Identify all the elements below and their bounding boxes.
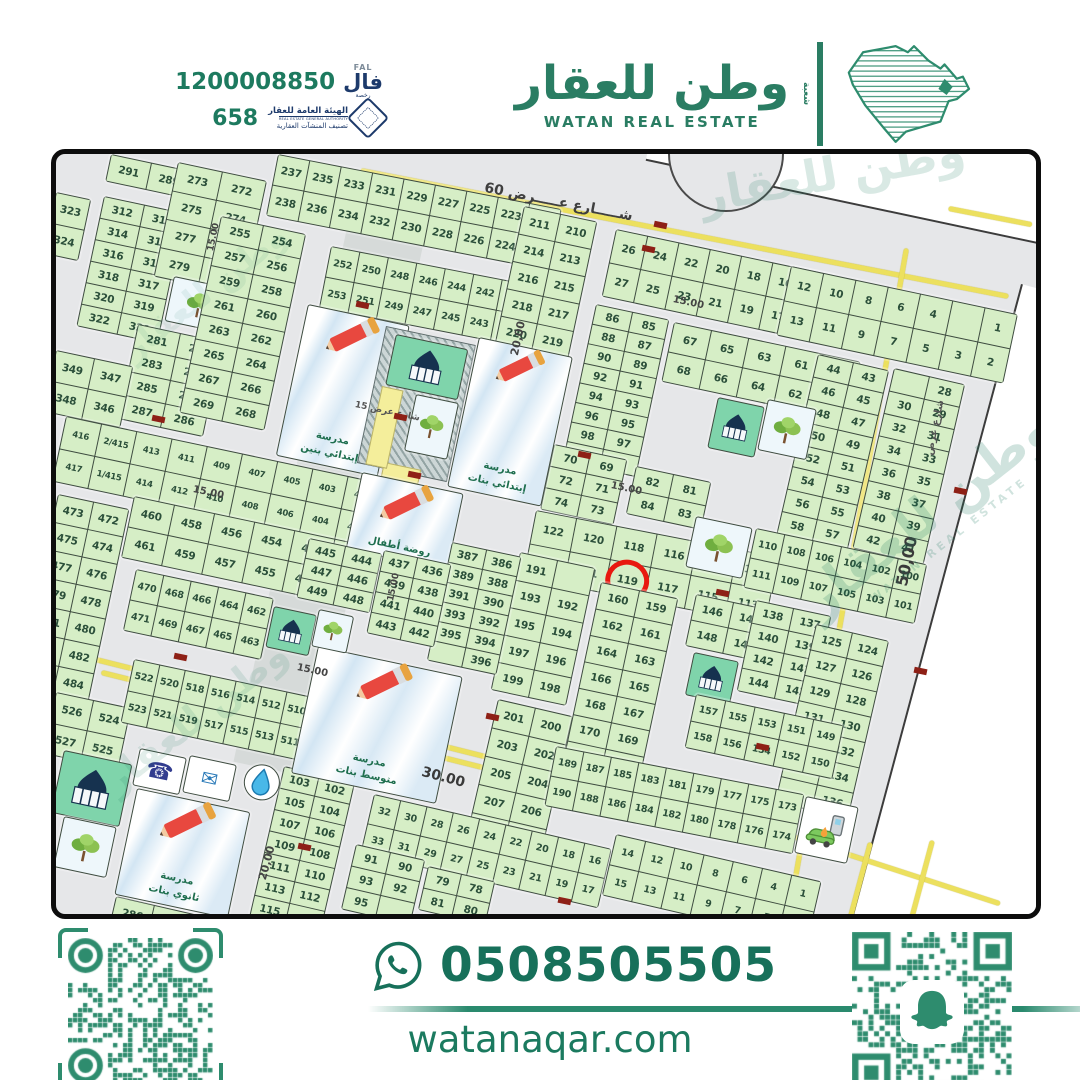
entrance-marker — [558, 897, 572, 906]
plot-cell: 174 — [765, 819, 797, 853]
plot-cell: 248 — [383, 258, 416, 293]
authority-name-ar: الهيئة العامة للعقار — [268, 106, 348, 117]
plot-cell: 246 — [411, 264, 444, 299]
plot-cell: 229 — [399, 180, 435, 215]
plot-cell: 252 — [326, 247, 359, 282]
real-estate-flyer: 1200008850 FAL فال رخصة 658 الهيئة العام… — [0, 0, 1080, 1080]
plot-block: 323324 — [51, 192, 91, 261]
plot-cell: 231 — [367, 173, 403, 208]
mosque-block — [707, 397, 765, 458]
plot-cell: 173 — [771, 790, 803, 824]
plot-block: 4734724754744774764794784814804834824854… — [51, 494, 129, 702]
plot-cell: 179 — [689, 774, 721, 808]
plot-cell: 235 — [304, 161, 340, 196]
plot-cell: 1 — [785, 876, 820, 912]
school-label: مدرسة إبتدائي بنات — [466, 456, 530, 497]
plot-cell: 184 — [628, 793, 660, 827]
park-block — [311, 609, 354, 654]
plot-cell: 66 — [700, 360, 742, 396]
brand-name-en: WATAN REAL ESTATE — [544, 113, 761, 131]
saudi-map-icon — [835, 38, 993, 150]
plot-cell: 238 — [267, 186, 303, 221]
school-label: مدرسة متوسط بنات — [334, 748, 401, 789]
park-block — [757, 399, 817, 460]
license-cluster: 1200008850 FAL فال رخصة 658 الهيئة العام… — [168, 64, 383, 133]
plot-cell: 180 — [683, 803, 715, 837]
plot-cell: 189 — [551, 747, 583, 781]
plot-cell: 244 — [440, 269, 473, 304]
phone-number: 0508505505 — [440, 938, 777, 993]
plot-cell: 242 — [468, 275, 501, 310]
plot-cell: 183 — [634, 763, 666, 797]
plot-cell: 190 — [546, 777, 578, 811]
plot-cell: 250 — [355, 253, 388, 288]
plot-cell: 152 — [774, 740, 808, 771]
plot-cell: 68 — [663, 353, 705, 389]
plot-cell: 282 — [186, 915, 229, 919]
plot-cell: 234 — [330, 198, 366, 233]
plot-cell: 181 — [661, 769, 693, 803]
plot-cell: 226 — [456, 222, 492, 257]
school-label: مدرسة ثانوي بنات — [147, 867, 204, 906]
plot-cell: 236 — [299, 192, 335, 227]
whatsapp-icon — [372, 939, 426, 993]
plot-cell: 185 — [606, 758, 638, 792]
whatsapp-contact: 0508505505 — [372, 938, 777, 993]
plot-cell: 232 — [361, 204, 397, 239]
plot-cell: 1/415 — [88, 457, 129, 496]
plot-cell: 228 — [424, 216, 460, 251]
plot-cell: 227 — [430, 186, 466, 221]
plot-cell: 101 — [886, 589, 919, 623]
authority-logo: الهيئة العامة للعقار REAL ESTATE GENERAL… — [268, 103, 383, 133]
plot-block: 349347348346 — [51, 350, 133, 428]
school-label: مدرسة إبتدائي بنين — [299, 426, 362, 467]
school-block: مدرسة ثانوي بنات — [114, 788, 250, 919]
fal-license-number: 1200008850 — [175, 69, 335, 95]
brand-divider-bar — [817, 42, 823, 146]
qr-code-right — [852, 932, 1012, 1080]
mail-icon: ✉ — [199, 765, 220, 792]
authority-license-number: 658 — [212, 106, 258, 131]
authority-diamond-icon — [347, 97, 389, 139]
plot-cell: 156 — [715, 728, 749, 759]
plot-cell: 233 — [336, 167, 372, 202]
entrance-marker — [174, 653, 188, 662]
plot-cell: 247 — [406, 294, 439, 329]
plot-cell: 237 — [273, 155, 309, 190]
brand-side-text: شعبة — [801, 82, 811, 105]
plot-cell: 188 — [573, 782, 605, 816]
website-url: watanaqar.com — [380, 1018, 720, 1061]
authority-sub: تصنيف المنشآت العقارية — [277, 122, 348, 131]
brand-logo: وطن للعقار WATAN REAL ESTATE شعبة — [515, 38, 993, 150]
snapchat-icon — [900, 980, 964, 1044]
qr-code-left — [68, 938, 213, 1080]
plot-cell: 245 — [434, 300, 467, 335]
plot-cell: 187 — [579, 753, 611, 787]
plot-cell: 1 — [978, 308, 1016, 348]
fal-logo-ar: فال — [343, 72, 383, 93]
fal-logo: FAL فال رخصة — [343, 64, 383, 99]
qr-bracket-icon — [193, 928, 223, 958]
qr-bracket-icon — [193, 1063, 223, 1080]
plot-cell: 243 — [462, 305, 495, 340]
plot-cell: 186 — [601, 787, 633, 821]
plot-cell: 158 — [686, 722, 720, 753]
plot-cell: 64 — [737, 368, 779, 404]
plot-cell: 182 — [655, 798, 687, 832]
entrance-marker — [486, 713, 500, 722]
plot-cell: 417 — [53, 449, 94, 488]
plot-cell: 177 — [716, 779, 748, 813]
plot-cell: 16 — [579, 844, 611, 878]
plot-cell: 462 — [240, 593, 273, 628]
post-facility: ✉ — [182, 755, 237, 802]
plot-cell: 2 — [971, 343, 1009, 383]
plot-cell: 178 — [710, 809, 742, 843]
plot-cell: 150 — [803, 747, 837, 778]
plot-cell: 291 — [106, 155, 151, 189]
subdivision-map: 2912893233243123113143133163153183173203… — [51, 149, 1041, 919]
qr-bracket-icon — [58, 1063, 88, 1080]
brand-name-ar: وطن للعقار — [515, 57, 789, 111]
plot-cell: 9 — [691, 886, 726, 919]
plot-cell: 175 — [744, 785, 776, 819]
plot-cell: 230 — [393, 210, 429, 245]
qr-bracket-icon — [58, 928, 88, 958]
plot-cell: 17 — [572, 873, 604, 907]
plot-cell: 176 — [738, 814, 770, 848]
park-block — [53, 816, 117, 878]
plot-cell: 324 — [51, 224, 84, 260]
